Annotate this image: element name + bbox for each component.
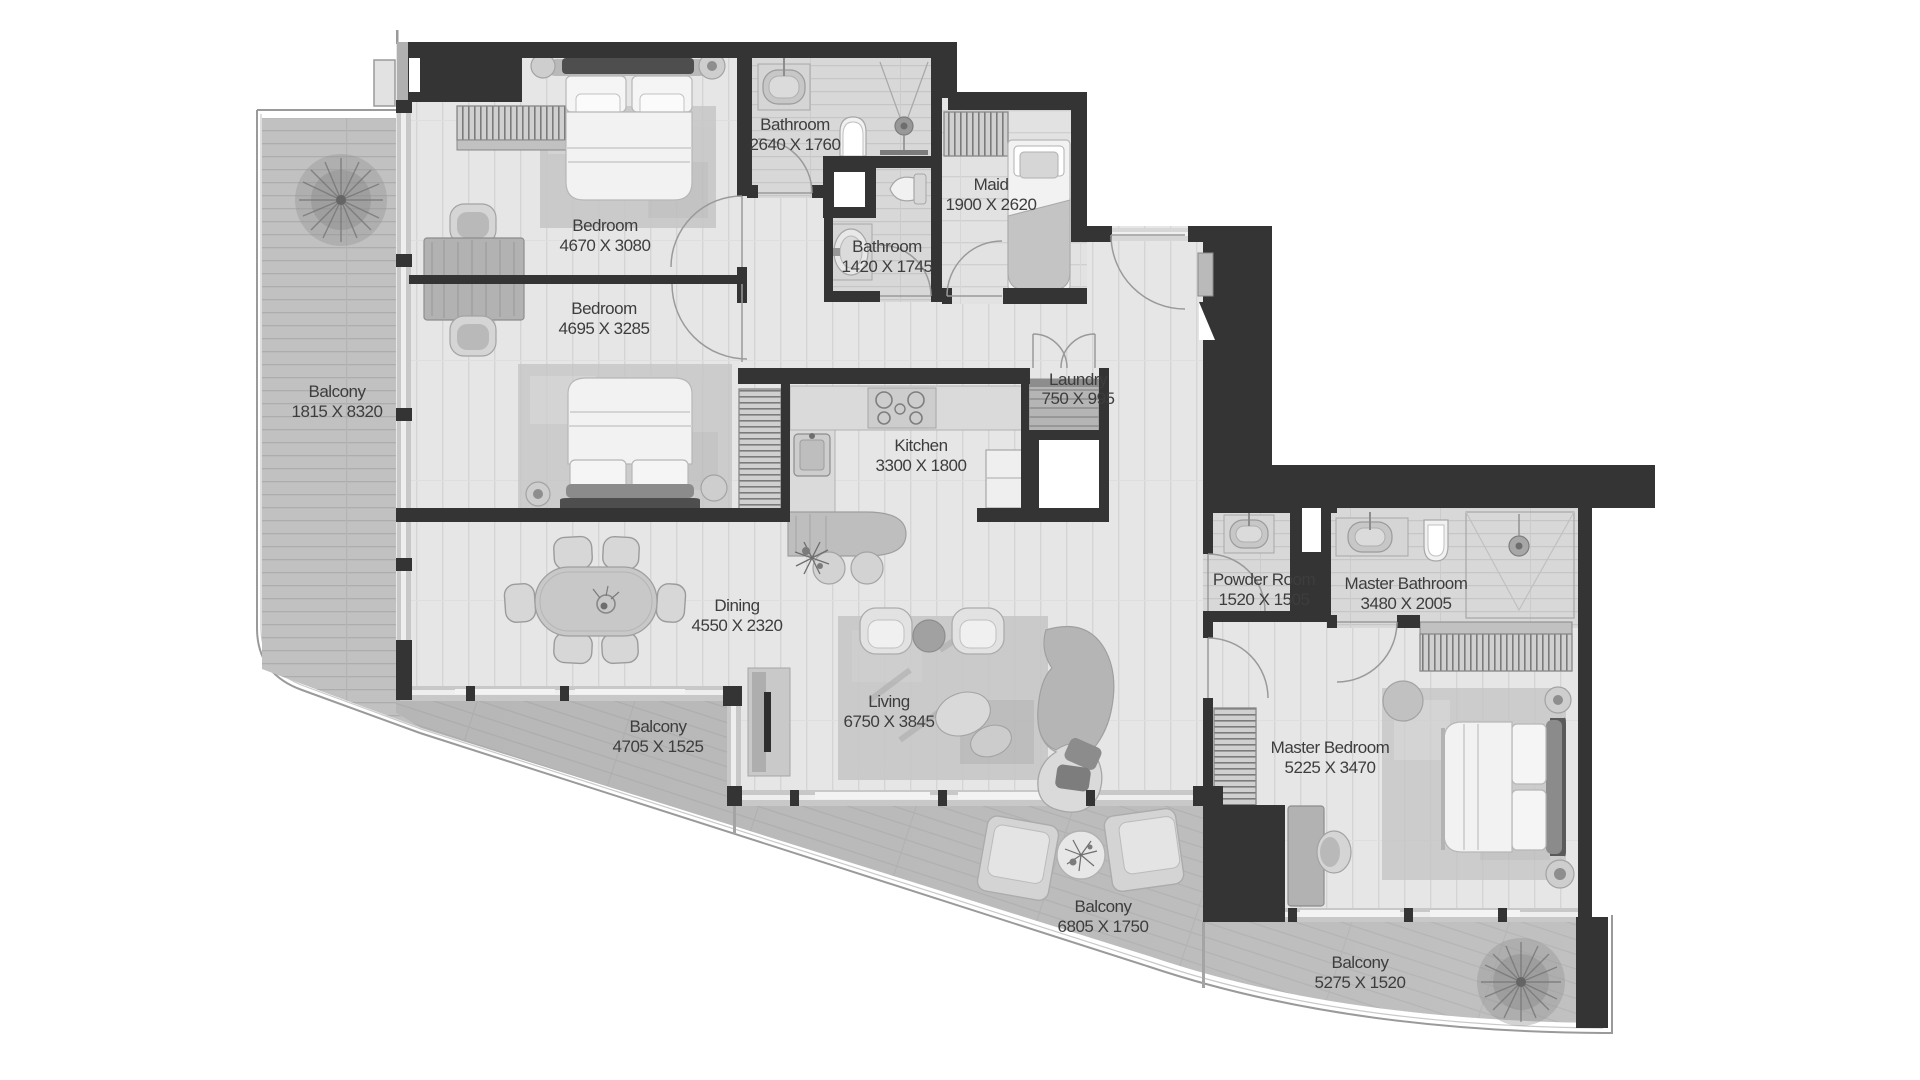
svg-text:Master Bathroom: Master Bathroom bbox=[1345, 574, 1468, 593]
svg-text:1520 X 1505: 1520 X 1505 bbox=[1219, 590, 1310, 609]
svg-text:1900 X 2620: 1900 X 2620 bbox=[946, 195, 1037, 214]
svg-text:Dining: Dining bbox=[714, 596, 759, 615]
svg-text:4695 X 3285: 4695 X 3285 bbox=[559, 319, 650, 338]
svg-text:4705 X 1525: 4705 X 1525 bbox=[613, 737, 704, 756]
svg-text:4550 X 2320: 4550 X 2320 bbox=[692, 616, 783, 635]
svg-text:4670 X 3080: 4670 X 3080 bbox=[560, 236, 651, 255]
svg-text:Bathroom: Bathroom bbox=[852, 237, 922, 256]
svg-text:750 X 995: 750 X 995 bbox=[1041, 389, 1114, 408]
svg-text:Balcony: Balcony bbox=[309, 382, 367, 401]
svg-text:3480 X 2005: 3480 X 2005 bbox=[1361, 594, 1452, 613]
svg-text:Powder Room: Powder Room bbox=[1213, 570, 1316, 589]
svg-text:2640 X 1760: 2640 X 1760 bbox=[750, 135, 841, 154]
svg-text:Bathroom: Bathroom bbox=[760, 115, 830, 134]
svg-text:Bedroom: Bedroom bbox=[571, 299, 637, 318]
svg-text:Living: Living bbox=[868, 692, 909, 711]
svg-text:3300 X 1800: 3300 X 1800 bbox=[876, 456, 967, 475]
svg-text:Balcony: Balcony bbox=[1075, 897, 1133, 916]
svg-text:Bedroom: Bedroom bbox=[572, 216, 638, 235]
svg-text:5275 X 1520: 5275 X 1520 bbox=[1315, 973, 1406, 992]
svg-text:Master Bedroom: Master Bedroom bbox=[1271, 738, 1390, 757]
svg-text:Laundry: Laundry bbox=[1049, 370, 1108, 389]
svg-text:1815 X 8320: 1815 X 8320 bbox=[292, 402, 383, 421]
svg-text:Balcony: Balcony bbox=[1332, 953, 1390, 972]
svg-text:6805 X 1750: 6805 X 1750 bbox=[1058, 917, 1149, 936]
svg-text:Maid: Maid bbox=[974, 175, 1009, 194]
svg-text:Kitchen: Kitchen bbox=[894, 436, 947, 455]
svg-text:1420 X 1745: 1420 X 1745 bbox=[842, 257, 933, 276]
svg-text:Balcony: Balcony bbox=[630, 717, 688, 736]
svg-text:5225 X 3470: 5225 X 3470 bbox=[1285, 758, 1376, 777]
svg-text:6750 X 3845: 6750 X 3845 bbox=[844, 712, 935, 731]
